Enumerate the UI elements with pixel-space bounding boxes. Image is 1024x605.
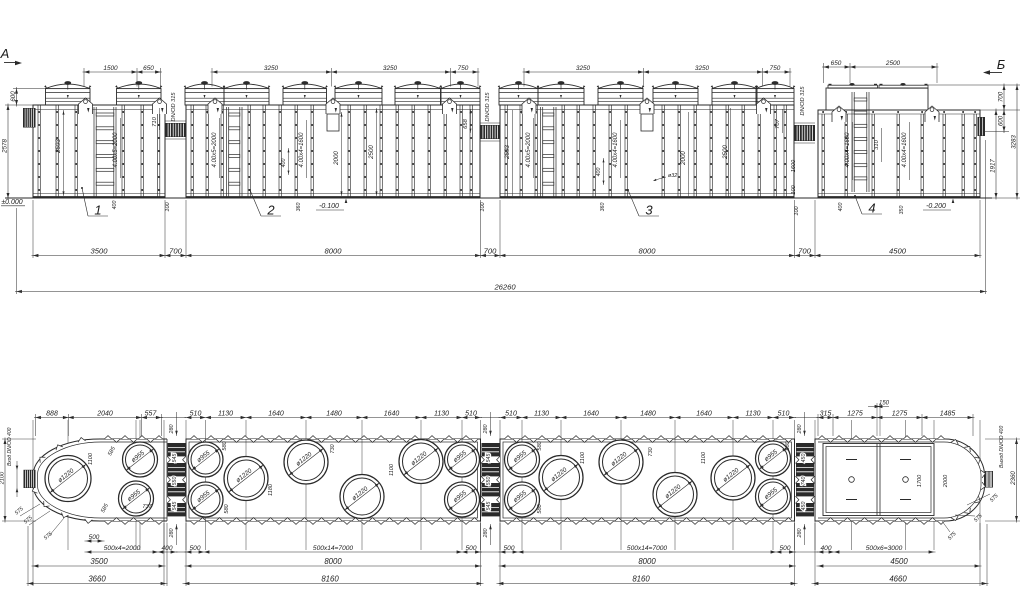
- svg-text:500: 500: [189, 545, 200, 552]
- svg-text:280: 280: [483, 529, 489, 539]
- svg-text:1500: 1500: [103, 65, 118, 72]
- svg-text:3250: 3250: [383, 65, 398, 72]
- svg-text:700: 700: [169, 246, 182, 255]
- svg-text:4500: 4500: [890, 557, 908, 566]
- svg-text:500: 500: [465, 545, 476, 552]
- svg-text:740: 740: [801, 477, 807, 486]
- svg-text:8000: 8000: [638, 557, 656, 566]
- svg-text:730: 730: [648, 446, 654, 456]
- svg-text:730: 730: [330, 443, 336, 453]
- svg-text:280: 280: [169, 425, 175, 435]
- svg-text:2500: 2500: [368, 145, 375, 160]
- svg-text:310: 310: [874, 139, 880, 149]
- svg-text:400: 400: [838, 203, 844, 212]
- svg-text:1: 1: [94, 203, 101, 218]
- svg-text:750: 750: [770, 65, 781, 72]
- svg-text:3: 3: [645, 203, 653, 218]
- svg-text:280: 280: [797, 425, 803, 435]
- svg-text:100: 100: [480, 201, 486, 211]
- svg-text:510: 510: [465, 410, 477, 417]
- svg-text:4.00х4=1600: 4.00х4=1600: [299, 132, 305, 168]
- svg-text:4.00х4=1600: 4.00х4=1600: [845, 132, 851, 168]
- svg-text:580: 580: [224, 503, 230, 513]
- svg-text:3250: 3250: [264, 65, 279, 72]
- svg-text:2000: 2000: [333, 151, 340, 166]
- svg-text:4.00х5=2000: 4.00х5=2000: [212, 132, 218, 168]
- svg-text:400: 400: [820, 545, 831, 552]
- svg-text:500х4=2000: 500х4=2000: [104, 545, 141, 552]
- svg-text:750: 750: [458, 65, 469, 72]
- svg-text:-0.100: -0.100: [319, 203, 339, 210]
- svg-text:4: 4: [868, 201, 875, 216]
- svg-text:350: 350: [899, 206, 905, 215]
- svg-text:280: 280: [797, 529, 803, 539]
- svg-text:1640: 1640: [583, 410, 599, 417]
- svg-text:3283: 3283: [1011, 135, 1018, 149]
- svg-text:1180: 1180: [268, 483, 274, 496]
- svg-text:2360: 2360: [1010, 471, 1017, 486]
- svg-text:1130: 1130: [434, 410, 449, 417]
- svg-text:8000: 8000: [325, 246, 343, 255]
- svg-text:8160: 8160: [632, 574, 650, 583]
- svg-text:360: 360: [600, 203, 606, 212]
- svg-text:DN/OD 315: DN/OD 315: [800, 86, 806, 116]
- svg-text:500: 500: [779, 545, 790, 552]
- svg-text:1275: 1275: [892, 410, 908, 417]
- svg-text:2500: 2500: [722, 145, 729, 160]
- svg-text:1275: 1275: [847, 410, 863, 417]
- svg-text:4.00х5=2000: 4.00х5=2000: [113, 132, 119, 168]
- svg-text:1100: 1100: [580, 451, 586, 464]
- svg-text:360: 360: [296, 203, 302, 212]
- svg-text:1100: 1100: [701, 451, 707, 464]
- svg-text:2040: 2040: [96, 410, 113, 417]
- svg-text:400: 400: [596, 168, 602, 177]
- svg-text:8000: 8000: [639, 246, 657, 255]
- svg-text:500: 500: [89, 534, 100, 541]
- svg-text:280: 280: [483, 425, 489, 435]
- svg-text:3500: 3500: [91, 246, 109, 255]
- svg-text:737: 737: [142, 504, 152, 510]
- svg-text:-0.200: -0.200: [926, 203, 946, 210]
- svg-text:1130: 1130: [218, 410, 233, 417]
- svg-text:2593: 2593: [504, 145, 511, 160]
- svg-text:580: 580: [537, 503, 543, 513]
- svg-text:700: 700: [484, 246, 497, 255]
- svg-text:2500: 2500: [885, 60, 901, 67]
- svg-text:600: 600: [998, 115, 1005, 126]
- svg-text:1100: 1100: [389, 463, 395, 476]
- svg-text:ø32: ø32: [668, 173, 677, 179]
- svg-text:557: 557: [145, 410, 158, 417]
- svg-text:700: 700: [998, 91, 1005, 102]
- svg-text:510: 510: [505, 410, 517, 417]
- svg-text:710: 710: [152, 116, 158, 126]
- svg-text:1640: 1640: [384, 410, 400, 417]
- svg-text:1485: 1485: [940, 410, 956, 417]
- svg-text:3250: 3250: [695, 65, 710, 72]
- svg-text:1480: 1480: [326, 410, 342, 417]
- svg-text:545: 545: [172, 454, 178, 463]
- svg-text:1917: 1917: [990, 159, 997, 173]
- svg-text:1600: 1600: [791, 159, 797, 172]
- svg-text:Выход DN/OD 400: Выход DN/OD 400: [999, 426, 1005, 468]
- svg-text:500: 500: [503, 545, 514, 552]
- svg-text:4.00х4=1600: 4.00х4=1600: [613, 132, 619, 168]
- svg-text:26260: 26260: [493, 282, 516, 291]
- svg-text:2: 2: [266, 203, 275, 218]
- svg-text:510: 510: [778, 410, 790, 417]
- svg-text:580: 580: [537, 440, 543, 450]
- svg-text:545: 545: [486, 502, 492, 511]
- svg-text:500х14=7000: 500х14=7000: [627, 545, 667, 552]
- svg-text:1100: 1100: [88, 452, 94, 465]
- svg-text:100: 100: [791, 184, 797, 194]
- svg-text:4.00х5=2000: 4.00х5=2000: [526, 132, 532, 168]
- svg-text:2593: 2593: [55, 139, 62, 154]
- svg-text:580: 580: [785, 440, 791, 450]
- svg-text:550: 550: [172, 477, 178, 486]
- svg-text:DN/OD 315: DN/OD 315: [485, 92, 491, 122]
- svg-text:8160: 8160: [321, 574, 339, 583]
- svg-text:DN/OD 315: DN/OD 315: [171, 92, 177, 122]
- svg-text:658: 658: [463, 118, 469, 128]
- svg-text:450: 450: [801, 502, 807, 511]
- svg-text:280: 280: [169, 529, 175, 539]
- svg-text:550: 550: [486, 477, 492, 486]
- svg-text:3250: 3250: [576, 65, 591, 72]
- svg-text:510: 510: [190, 410, 202, 417]
- svg-text:150: 150: [879, 400, 890, 406]
- svg-text:1640: 1640: [268, 410, 284, 417]
- svg-text:А: А: [0, 46, 9, 61]
- svg-text:500х6=3000: 500х6=3000: [866, 545, 903, 552]
- svg-text:2000: 2000: [943, 474, 949, 488]
- svg-text:2000: 2000: [680, 151, 687, 166]
- svg-text:100: 100: [794, 205, 800, 215]
- svg-text:450: 450: [801, 454, 807, 463]
- svg-text:650: 650: [143, 65, 154, 72]
- svg-text:315: 315: [820, 410, 832, 417]
- svg-text:1480: 1480: [640, 410, 656, 417]
- svg-text:8000: 8000: [324, 557, 342, 566]
- svg-text:1130: 1130: [745, 410, 760, 417]
- svg-text:2578: 2578: [2, 139, 9, 154]
- svg-text:4660: 4660: [889, 574, 907, 583]
- svg-text:Б: Б: [997, 57, 1006, 72]
- svg-text:888: 888: [46, 410, 58, 417]
- svg-text:1700: 1700: [917, 474, 923, 487]
- svg-text:3660: 3660: [88, 574, 106, 583]
- svg-text:400: 400: [281, 159, 287, 168]
- svg-text:4.00х4=1600: 4.00х4=1600: [902, 132, 908, 168]
- svg-text:100: 100: [165, 201, 171, 211]
- svg-text:2100: 2100: [0, 471, 6, 485]
- svg-text:1130: 1130: [534, 410, 549, 417]
- svg-text:700: 700: [798, 246, 811, 255]
- svg-text:580: 580: [222, 440, 228, 450]
- svg-text:3500: 3500: [90, 557, 108, 566]
- svg-text:650: 650: [831, 60, 842, 67]
- svg-text:600: 600: [10, 91, 17, 102]
- svg-text:4500: 4500: [889, 246, 907, 255]
- svg-text:±0.000: ±0.000: [1, 199, 22, 206]
- svg-text:400: 400: [112, 201, 118, 210]
- svg-text:500х14=7000: 500х14=7000: [313, 545, 353, 552]
- svg-text:545: 545: [172, 502, 178, 511]
- svg-text:545: 545: [486, 454, 492, 463]
- svg-text:Вход DN/OD 400: Вход DN/OD 400: [7, 427, 13, 466]
- svg-text:1640: 1640: [696, 410, 712, 417]
- svg-text:707: 707: [775, 118, 781, 128]
